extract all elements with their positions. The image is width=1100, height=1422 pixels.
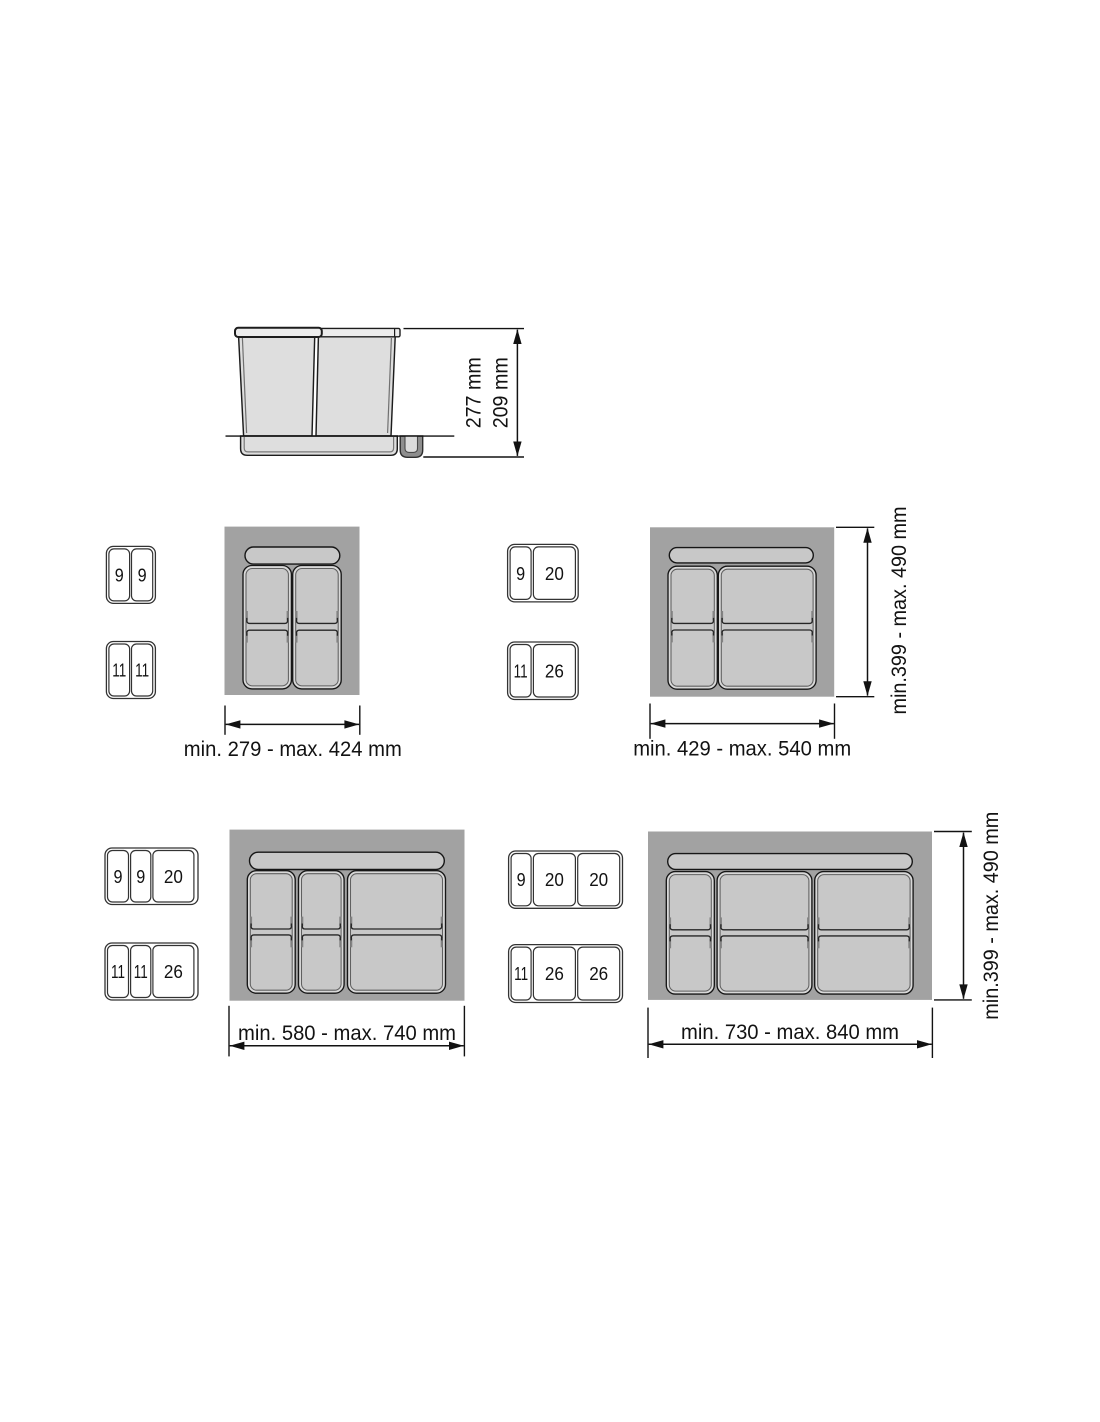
svg-text:min. 279 - max. 424 mm: min. 279 - max. 424 mm [184,738,402,761]
svg-text:11: 11 [135,661,149,681]
svg-text:11: 11 [111,962,125,982]
svg-text:26: 26 [545,964,564,984]
svg-text:min. 580 - max. 740 mm: min. 580 - max. 740 mm [238,1022,456,1045]
svg-text:min.399 - max. 490 mm: min.399 - max. 490 mm [980,812,1003,1020]
svg-text:min. 429 - max. 540 mm: min. 429 - max. 540 mm [633,737,851,760]
svg-text:9: 9 [136,867,145,887]
svg-text:26: 26 [545,661,564,681]
svg-text:9: 9 [115,566,124,586]
svg-text:20: 20 [589,870,608,890]
svg-text:277 mm: 277 mm [462,357,485,428]
svg-text:20: 20 [545,564,564,584]
svg-text:20: 20 [164,867,183,887]
svg-text:9: 9 [516,564,525,584]
svg-text:11: 11 [134,962,148,982]
svg-text:9: 9 [138,566,147,586]
svg-text:min. 730 - max. 840 mm: min. 730 - max. 840 mm [681,1021,899,1044]
svg-text:11: 11 [514,661,528,681]
svg-text:9: 9 [114,867,123,887]
svg-text:11: 11 [514,964,528,984]
svg-text:20: 20 [545,870,564,890]
svg-text:11: 11 [112,661,126,681]
svg-text:26: 26 [589,964,608,984]
svg-text:9: 9 [517,870,526,890]
svg-text:min.399 - max. 490 mm: min.399 - max. 490 mm [888,507,911,715]
svg-text:209 mm: 209 mm [490,357,513,428]
svg-text:26: 26 [164,962,183,982]
